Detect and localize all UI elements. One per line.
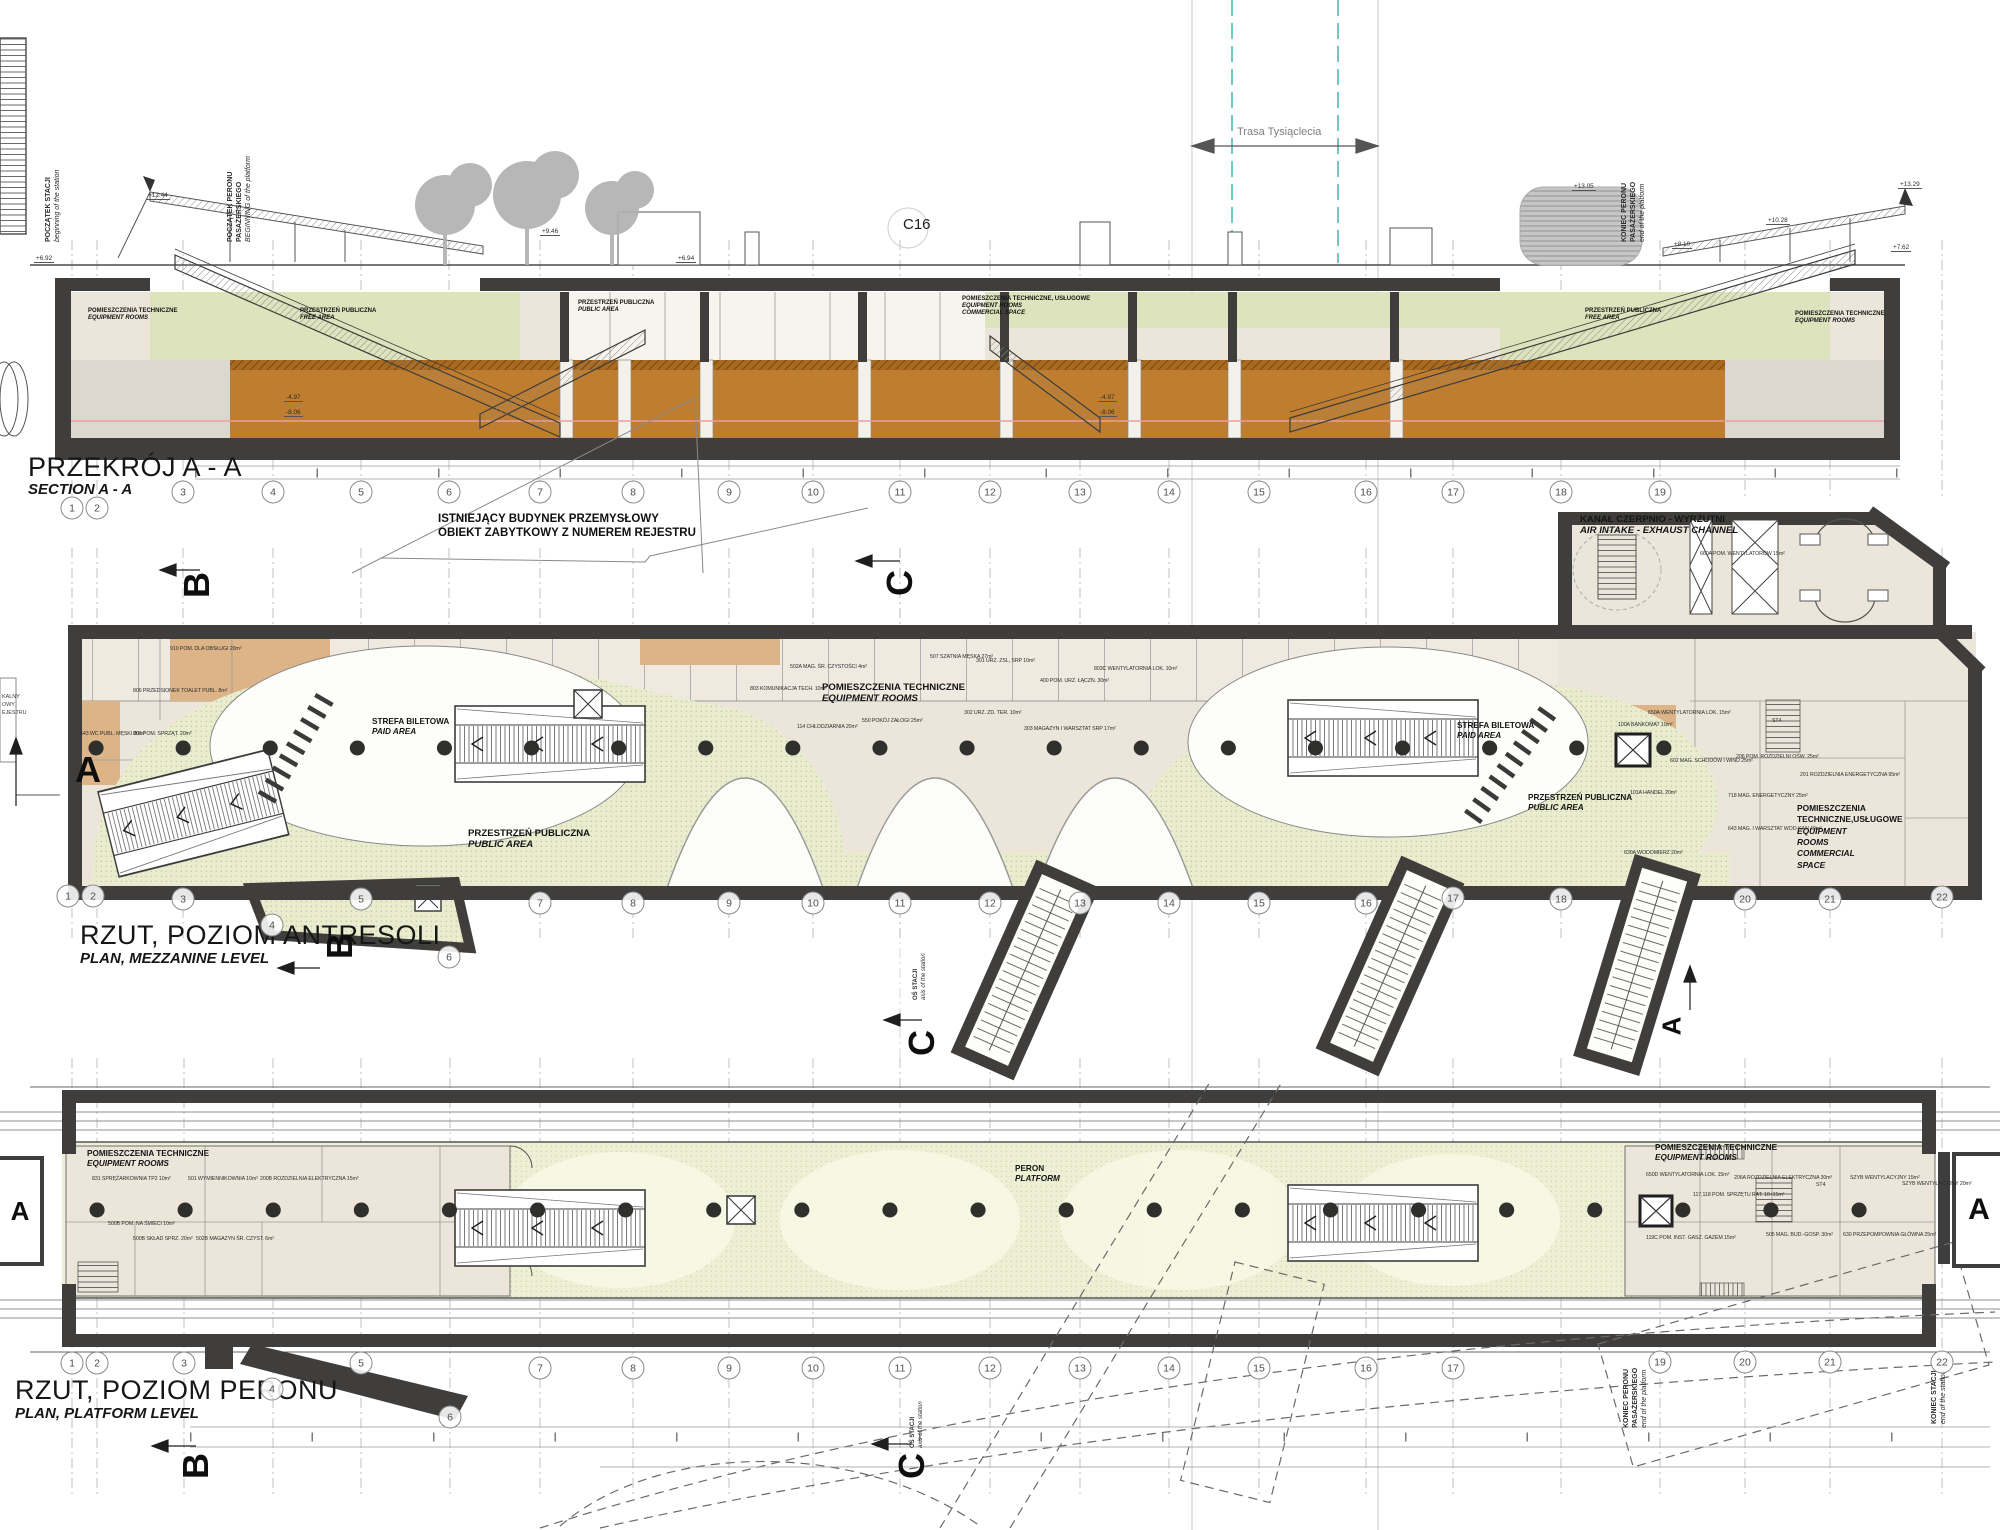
zone-label: PRZESTRZEŃ PUBLICZNAFREE AREA [1585,308,1661,322]
room-tag: 502B MAGAZYN ŚR. CZYST. 6m² [196,1236,274,1242]
mezzanine-subtitle: PLAN, MEZZANINE LEVEL [80,950,269,967]
grid-bubble: 4 [261,1378,284,1401]
elevation-mark: +13.05 [1572,183,1596,191]
room-tag: ST4 [1772,718,1781,724]
grid-bubble: 2 [86,1352,109,1375]
room-tag: 117,118 POM. SPRZĘTU RAT. 10+15m² [1693,1192,1784,1198]
cut-marker-a: A [1657,1017,1688,1036]
grid-bubble: 10 [802,1357,825,1380]
room-tag: 302 URZ. ZD. TER. 10m² [964,710,1021,716]
room-tag: SZYB WENTYLACYJNY 20m² [1902,1181,1972,1187]
grid-bubble: 4 [262,481,285,504]
station-axis-label: OŚ STACJIaxis of the station [910,1401,926,1448]
room-tag: 500B SKŁAD SPRZ. 20m² [133,1236,193,1242]
grid-bubble: 12 [979,481,1002,504]
grid-bubble: 7 [529,892,552,915]
grid-bubble: 8 [622,892,645,915]
platform-dimension-lines [190,1427,1990,1467]
equipment-rooms-label: POMIESZCZENIA TECHNICZNEEQUIPMENT ROOMS [822,682,965,705]
zone-label: POMIESZCZENIA TECHNICZNE, USŁUGOWEEQUIPM… [962,296,1090,317]
clipped-text-fragment: OWY [2,702,15,708]
room-tag: 630A WODOMIERZ 20m² [1624,850,1683,856]
room-tag: 101A HANDEL 20m² [1630,790,1677,796]
escalator-bank [1288,700,1478,776]
section-dimension-lines [195,466,1900,479]
grid-bubble: 21 [1819,1351,1842,1374]
room-tag: ST4 [1816,1182,1825,1188]
room-tag: 500B POM. NA ŚMIECI 10m² [108,1221,175,1227]
cut-marker-b: B [319,933,361,959]
cut-marker-a-box: A [1952,1152,2000,1268]
cut-marker-a: A [75,749,101,791]
surface-structures [618,212,1432,265]
elevation-mark: -8.06 [1098,409,1117,417]
station-drawing-sheet: C16 Trasa Tysiąclecia PRZEKRÓJ A - A SEC… [0,0,2000,1530]
edge-label-end-platform: KONIEC PERONUPASAŻERSKIEGOend of the pla… [1622,1368,1649,1428]
room-tag: 718 MAG. ENERGETYCZNY 25m² [1728,793,1808,799]
grid-bubble: 9 [718,1357,741,1380]
grid-bubble: 10 [802,892,825,915]
grid-bubble: 15 [1248,892,1271,915]
cut-marker-c: C [901,1030,943,1056]
room-tag: 801 POM. SPRZĄT. 20m² [133,731,192,737]
grid-bubble: 10 [802,481,825,504]
grid-bubble: 22 [1931,1351,1954,1374]
existing-building-note: ISTNIEJĄCY BUDYNEK PRZEMYSŁOWYOBIEKT ZAB… [438,512,696,541]
room-tag: 301 URZ. ZSL, SRP 10m² [976,658,1035,664]
grid-bubble: 6 [438,946,461,969]
grid-bubble: 6 [439,1406,462,1429]
grid-bubble: 6 [438,481,461,504]
edge-label-end-station: KONIEC STACJIend of the station [1930,1370,1948,1424]
grid-bubble: 1 [61,497,84,520]
elevation-mark: -4.97 [284,394,303,402]
room-tag: 303 MAGAZYN I WARSZTAT SRP 17m² [1024,726,1116,732]
edge-building-fragment [0,38,26,234]
section-subtitle: SECTION A - A [28,481,132,498]
grid-bubble: 1 [57,885,80,908]
room-tag: 501 WYMIENNIKOWNIA 10m² [188,1176,258,1182]
drawing-linework [0,0,2000,1530]
grid-bubble: 5 [350,481,373,504]
cut-marker-a-box: A [0,1156,44,1266]
grid-bubble: 17 [1442,887,1465,910]
zone-label: POMIESZCZENIA TECHNICZNEEQUIPMENT ROOMS [88,308,177,322]
elevation-mark: -8.06 [284,409,303,417]
room-tag: 910 POM. DLA OBSŁUGI 20m² [170,646,241,652]
equipment-rooms-label: POMIESZCZENIA TECHNICZNEEQUIPMENT ROOMS [1655,1143,1777,1162]
room-tag: 114 CHŁODZIARNIA 20m² [797,724,858,730]
room-tag: 100A BANKOMAT 10m² [1618,722,1673,728]
grid-bubble: 3 [173,1352,196,1375]
grid-bubble: 19 [1649,481,1672,504]
room-tag: 200B ROZDZIELNIA ELEKTRYCZNA 15m² [260,1176,358,1182]
grid-bubble: 4 [261,914,284,937]
room-tag: 400 POM. URZ. ŁĄCZN. 30m² [1040,678,1109,684]
zone-label: PRZESTRZEŃ PUBLICZNAPUBLIC AREA [578,300,654,314]
grid-bubble: 14 [1158,481,1181,504]
platform-label: PERONPLATFORM [1015,1164,1060,1183]
platform-title: RZUT, POZIOM PERONU [15,1375,338,1406]
grid-bubble: 13 [1069,892,1092,915]
cut-marker-b: B [176,572,218,598]
grid-bubble: 20 [1734,888,1757,911]
point-label-c16: C16 [903,216,931,233]
grid-bubble: 9 [718,481,741,504]
room-tag: 831 SPRĘŻARKOWNIA TP2 10m² [92,1176,171,1182]
platform-subtitle: PLAN, PLATFORM LEVEL [15,1405,199,1422]
grid-bubble: 2 [86,497,109,520]
grid-bubble: 17 [1442,481,1465,504]
grid-bubble: 13 [1069,481,1092,504]
grid-bubble: 11 [889,481,912,504]
elevation-mark: +8.10 [1672,241,1692,249]
edge-label-start-platform: POCZĄTEK PERONUPASAŻERSKIEGOBEGINNING of… [226,156,253,242]
elevator [574,690,602,718]
grid-bubble: 5 [350,1352,373,1375]
room-tag: 502A MAG. ŚR. CZYSTOŚCI 4m² [790,664,867,670]
grid-bubble: 7 [529,1357,552,1380]
elevation-mark: +12.44 [146,192,170,200]
grid-bubble: 19 [1649,1351,1672,1374]
room-tag: 806 PRZEDSIONEK TOALET PUBL. 8m² [133,688,227,694]
room-tag: 650A WENTYLATORNIA LOK. 15m² [1648,710,1731,716]
elevation-mark: +7.62 [1891,244,1911,252]
grid-bubble: 12 [979,892,1002,915]
cut-marker-b: B [175,1453,217,1479]
grid-bubble: 9 [718,892,741,915]
grid-bubble: 20 [1734,1351,1757,1374]
room-tag: 803 KOMUNIKACJA TECH. 10m² [750,686,826,692]
grid-bubble: 12 [979,1357,1002,1380]
room-tag: 550 POKÓJ ZAŁOGI 25m² [862,718,923,724]
room-tag: 650D WENTYLATORNIA LOK. 15m² [1646,1172,1729,1178]
clipped-text-fragment: KALNY [2,694,20,700]
grid-bubble: 15 [1248,481,1271,504]
room-tag: 643 MAG. I WARSZTAT WOD-KAN 40m² [1728,826,1822,832]
grid-bubble: 7 [529,481,552,504]
elevation-mark: +6.94 [676,255,696,263]
grid-bubble: 16 [1355,481,1378,504]
grid-bubble: 3 [172,481,195,504]
grid-bubble: 2 [82,885,105,908]
elevation-mark: +13.29 [1898,181,1922,189]
grid-bubble: 17 [1442,1357,1465,1380]
cut-marker-c: C [891,1453,933,1479]
grid-bubble: 3 [172,888,195,911]
zone-label: POMIESZCZENIA TECHNICZNEEQUIPMENT ROOMS [1795,311,1884,325]
grid-bubble: 15 [1248,1357,1271,1380]
room-tag: 803C WENTYLATORNIA LOK. 10m² [1094,666,1177,672]
room-tag: 660A POM. WENTYLATORÓW 15m² [1700,551,1785,557]
commercial-space-label: POMIESZCZENIATECHNICZNE,USŁUGOWE EQUIPME… [1797,803,1903,871]
room-tag: 201 ROZDZIELNIA ENERGETYCZNA 95m² [1800,772,1900,778]
public-area-label: PRZESTRZEŃ PUBLICZNAPUBLIC AREA [1528,793,1632,812]
air-intake-label: KANAŁ CZERPNIO - WYRZUTNIAIR INTAKE - EX… [1580,514,1738,537]
road-name-label: Trasa Tysiąclecia [1237,126,1321,138]
edge-label-start-station: POCZĄTEK STACJIbeginning of the station [44,170,62,242]
elevator [1640,1196,1672,1226]
stair [1766,700,1800,752]
tunnel-profile [0,362,28,436]
section-title: PRZEKRÓJ A - A [28,452,242,483]
zone-label: PRZESTRZEŃ PUBLICZNAFREE AREA [300,308,376,322]
paid-area-label: STREFA BILETOWAPAID AREA [1457,721,1534,740]
elevation-mark: +6.92 [34,255,54,263]
grid-bubble: 14 [1158,1357,1181,1380]
grid-bubble: 16 [1355,1357,1378,1380]
elevator [1616,734,1650,766]
room-tag: 206A ROZDZIELNIA ELEKTRYCZNA 30m² [1734,1175,1832,1181]
elevator [727,1196,755,1224]
grid-bubble: 18 [1550,481,1573,504]
elevation-mark: +10.28 [1766,217,1790,225]
station-axis-label: OŚ STACJIaxis of the station [913,953,929,1000]
cut-marker-c: C [879,570,921,596]
elevation-mark: +9.46 [540,228,560,236]
grid-bubble: 14 [1158,892,1181,915]
room-tag: 630 PRZEPOMPOWNIA GŁÓWNA 25m² [1843,1232,1936,1238]
public-area-label: PRZESTRZEŃ PUBLICZNAPUBLIC AREA [468,828,590,851]
grid-bubble: 5 [350,888,373,911]
room-tag: 119C POM. INST. GASZ. GAZEM 15m² [1646,1235,1736,1241]
road-span-arrow [1192,139,1378,153]
grid-bubble: 13 [1069,1357,1092,1380]
grid-bubble: 21 [1819,888,1842,911]
escalator-bank [455,1190,645,1266]
paid-area-label: STREFA BILETOWAPAID AREA [372,717,449,736]
escalator-bank [1288,1185,1478,1261]
grid-bubble: 22 [1931,886,1954,909]
grid-bubble: 8 [622,1357,645,1380]
grid-bubble: 1 [61,1352,84,1375]
elevation-mark: -4.97 [1098,394,1117,402]
grid-bubble: 18 [1550,888,1573,911]
equipment-rooms-label: POMIESZCZENIA TECHNICZNEEQUIPMENT ROOMS [87,1149,209,1168]
grid-bubble: 16 [1355,892,1378,915]
grid-bubble: 11 [889,1357,912,1380]
vault-arches [667,778,1193,888]
grid-bubble: 8 [622,481,645,504]
clipped-text-fragment: EJESTRU [2,710,27,716]
room-tag: 505 MAG. BUD.-GOSP. 30m² [1766,1232,1833,1238]
edge-label-end-platform: KONIEC PERONUPASAŻERSKIEGOend of the pla… [1620,182,1647,242]
room-tag: 206 POM. ROZDZIELNI OŚW. 25m² [1736,754,1819,760]
grid-bubble: 11 [889,892,912,915]
